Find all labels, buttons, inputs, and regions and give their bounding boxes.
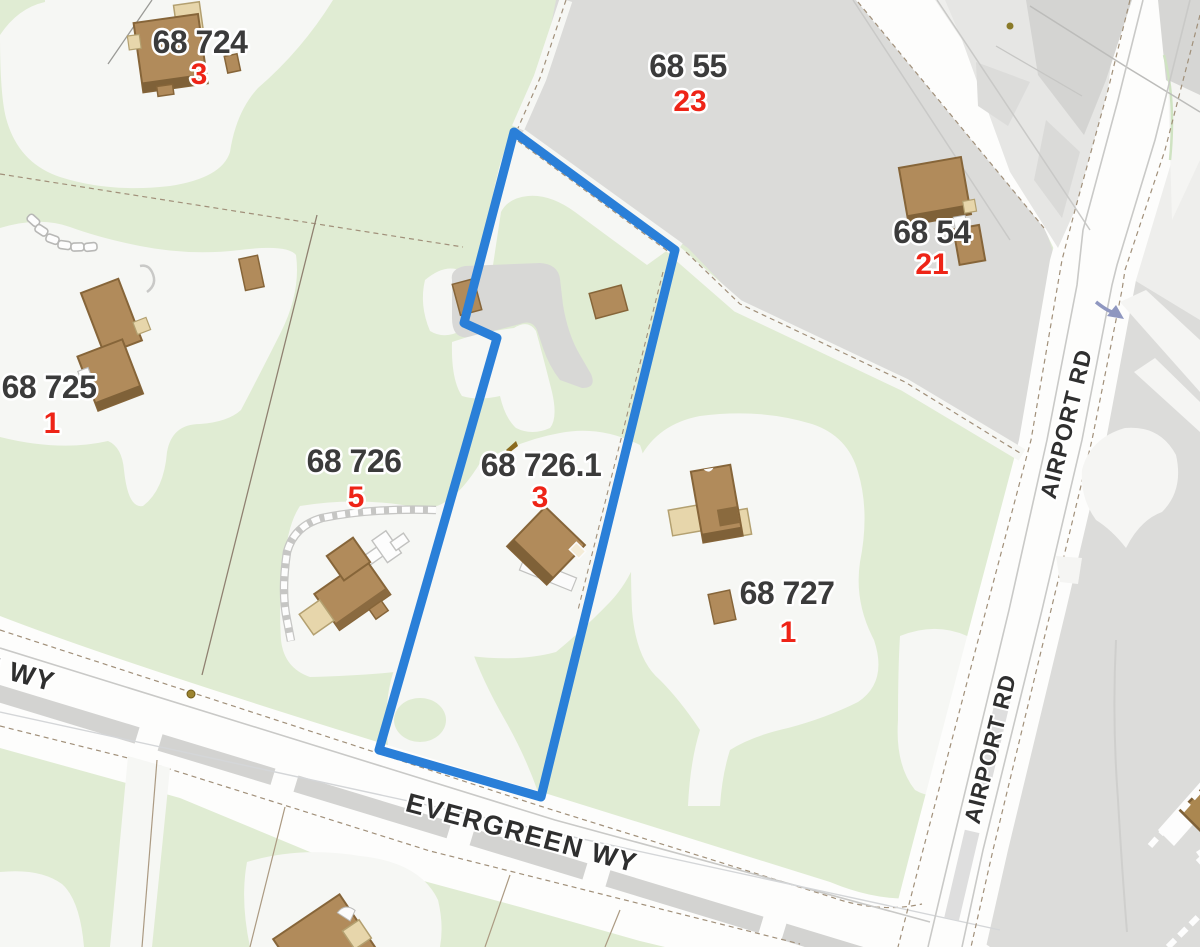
svg-text:5: 5 xyxy=(348,481,365,514)
svg-text:3: 3 xyxy=(532,481,549,514)
svg-text:3: 3 xyxy=(191,58,208,91)
svg-text:68 54: 68 54 xyxy=(893,214,971,250)
svg-text:68 727: 68 727 xyxy=(740,575,835,611)
svg-text:68 55: 68 55 xyxy=(649,48,727,84)
svg-text:68 726: 68 726 xyxy=(307,443,402,479)
svg-text:68 725: 68 725 xyxy=(2,369,97,405)
svg-text:21: 21 xyxy=(915,248,948,281)
svg-text:68 724: 68 724 xyxy=(153,24,249,60)
svg-text:68 726.1: 68 726.1 xyxy=(481,447,602,483)
svg-text:1: 1 xyxy=(780,616,797,649)
svg-text:23: 23 xyxy=(673,85,706,118)
svg-text:1: 1 xyxy=(44,407,61,440)
